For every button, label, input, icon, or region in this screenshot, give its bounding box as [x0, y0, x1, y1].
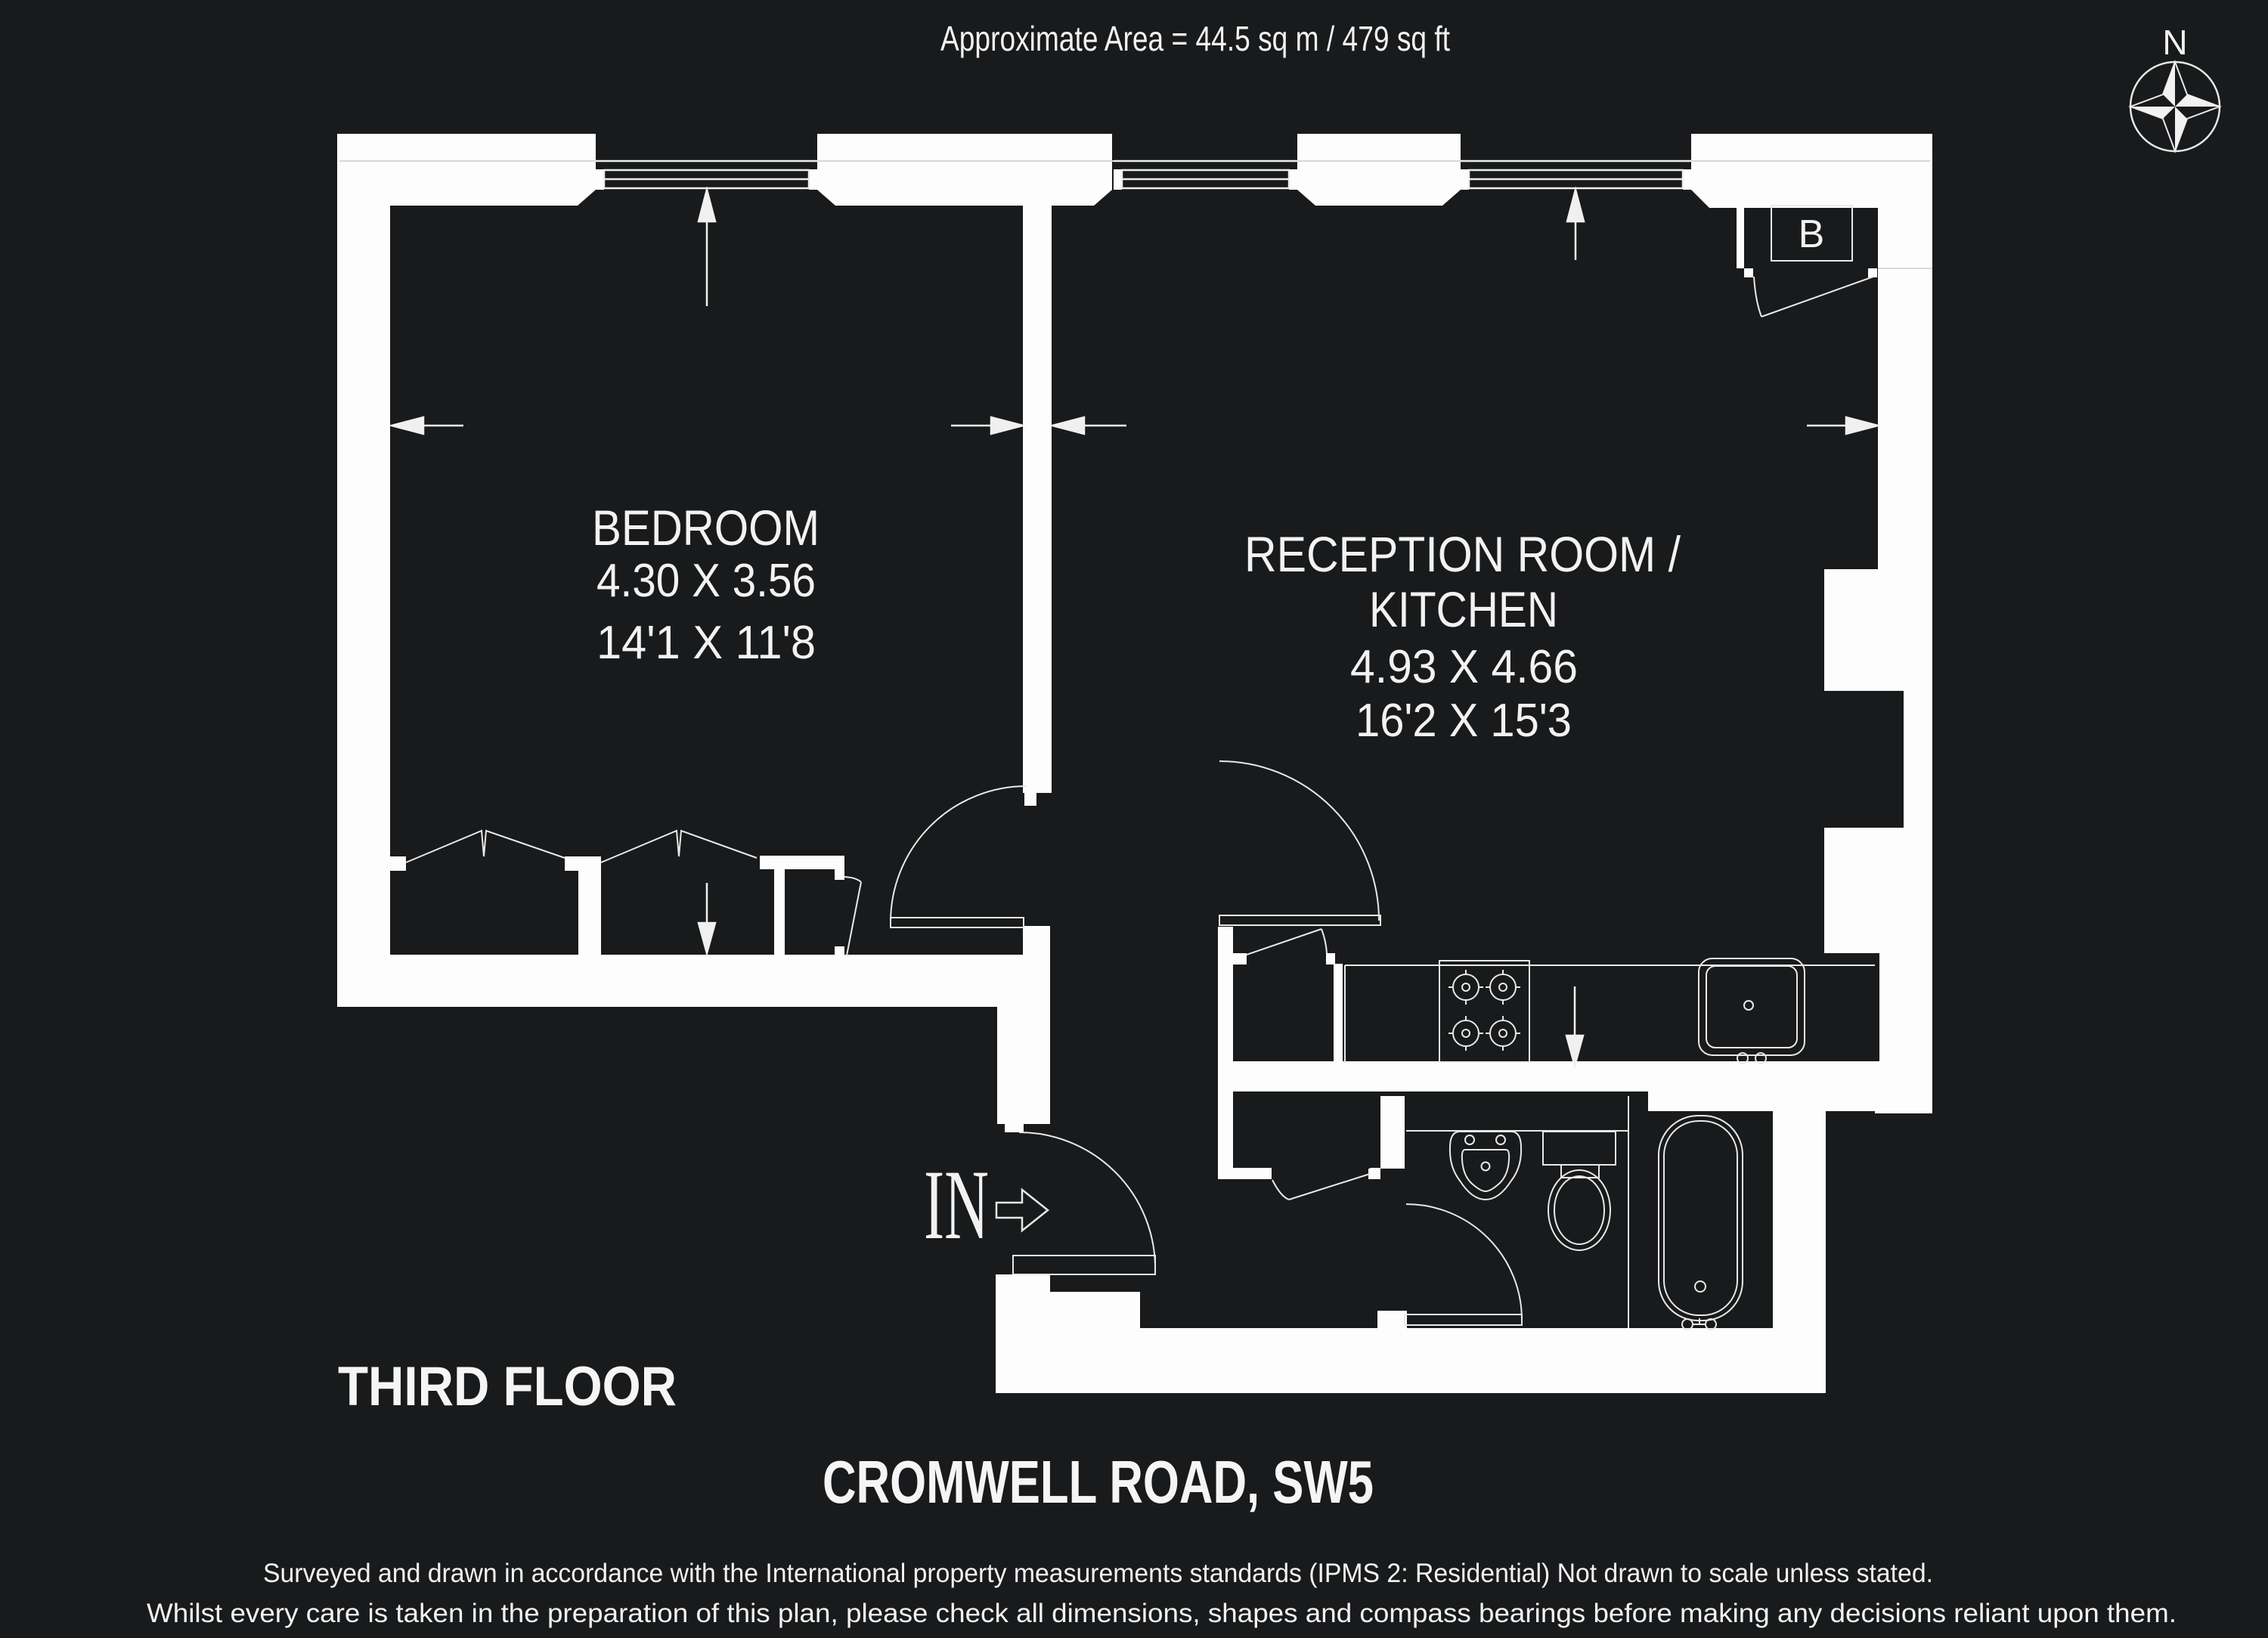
- svg-text:Surveyed and drawn in accordan: Surveyed and drawn in accordance with th…: [263, 1559, 1933, 1588]
- svg-text:THIRD FLOOR: THIRD FLOOR: [338, 1356, 677, 1417]
- svg-text:IN: IN: [924, 1149, 989, 1260]
- svg-text:RECEPTION ROOM /: RECEPTION ROOM /: [1244, 526, 1681, 582]
- svg-text:Approximate Area = 44.5 sq m /: Approximate Area = 44.5 sq m / 479 sq ft: [940, 19, 1450, 58]
- svg-text:BEDROOM: BEDROOM: [592, 500, 820, 556]
- svg-text:KITCHEN: KITCHEN: [1369, 581, 1558, 637]
- svg-text:Whilst every care is taken in: Whilst every care is taken in the prepar…: [147, 1599, 2177, 1628]
- svg-text:N: N: [2162, 23, 2187, 62]
- svg-text:4.93 X 4.66: 4.93 X 4.66: [1350, 641, 1578, 693]
- svg-text:16'2 X 15'3: 16'2 X 15'3: [1356, 695, 1572, 747]
- svg-text:B: B: [1799, 212, 1825, 256]
- svg-text:CROMWELL ROAD, SW5: CROMWELL ROAD, SW5: [823, 1448, 1374, 1516]
- svg-text:14'1 X 11'8: 14'1 X 11'8: [596, 617, 816, 669]
- svg-text:4.30 X 3.56: 4.30 X 3.56: [596, 555, 816, 607]
